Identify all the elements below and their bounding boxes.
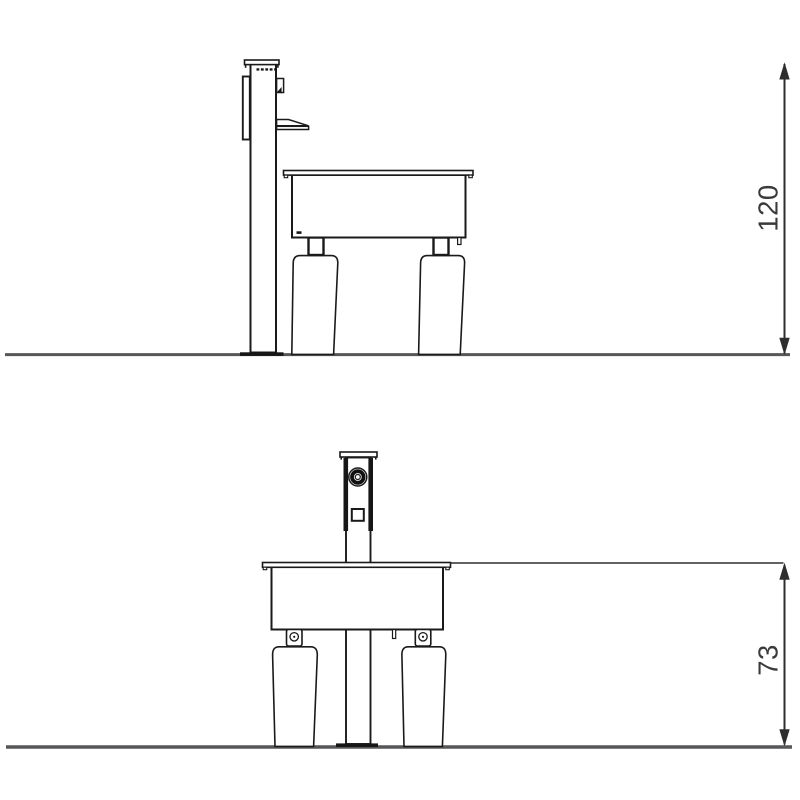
post-body bbox=[251, 64, 277, 353]
arrowhead-up bbox=[779, 62, 789, 79]
table-basin bbox=[272, 567, 444, 630]
post-cap bbox=[245, 60, 280, 65]
valve-fitting bbox=[349, 468, 367, 486]
rim-end-left bbox=[284, 175, 288, 178]
arrowhead-down bbox=[779, 338, 789, 355]
dimension-73: 73 bbox=[451, 563, 790, 747]
spout-shelf bbox=[277, 120, 309, 130]
square-opening bbox=[352, 509, 364, 521]
leg-collar-right bbox=[434, 238, 449, 256]
drain-tab bbox=[393, 630, 396, 639]
leg-bracket-right bbox=[415, 630, 431, 647]
table-leg-left bbox=[273, 647, 318, 747]
arrowhead-up bbox=[779, 563, 789, 580]
post-base-plate bbox=[240, 352, 284, 356]
post-side-panel bbox=[243, 77, 250, 140]
table-leg-left bbox=[292, 256, 338, 355]
technical-drawing: 120 bbox=[0, 0, 800, 800]
drawing-page: 120 bbox=[0, 0, 800, 800]
front-elevation-view: 73 bbox=[6, 452, 792, 747]
post-flange-right bbox=[368, 458, 373, 531]
leg-bracket-left bbox=[287, 630, 303, 647]
table-leg-right bbox=[402, 647, 446, 747]
table-top-rim bbox=[284, 171, 474, 176]
dimension-value: 73 bbox=[753, 644, 784, 676]
basin-mark bbox=[297, 231, 302, 234]
rim-end-right bbox=[469, 175, 473, 178]
rim-end-left bbox=[263, 567, 267, 570]
drain-tab bbox=[458, 238, 461, 245]
table-leg-right bbox=[419, 256, 465, 355]
post-knob bbox=[277, 79, 284, 94]
leg-collar-left bbox=[309, 238, 324, 256]
arrowhead-down bbox=[779, 729, 789, 746]
dimension-value: 120 bbox=[753, 184, 784, 231]
dimension-120: 120 bbox=[753, 62, 790, 355]
post-flange-left bbox=[344, 458, 349, 531]
table-top-rim bbox=[263, 563, 451, 568]
post-cap bbox=[340, 452, 377, 457]
table-basin bbox=[292, 175, 466, 238]
rim-end-right bbox=[446, 567, 450, 570]
side-elevation-view: 120 bbox=[5, 60, 790, 356]
post-base-plate bbox=[336, 743, 378, 747]
play-table bbox=[284, 171, 474, 355]
